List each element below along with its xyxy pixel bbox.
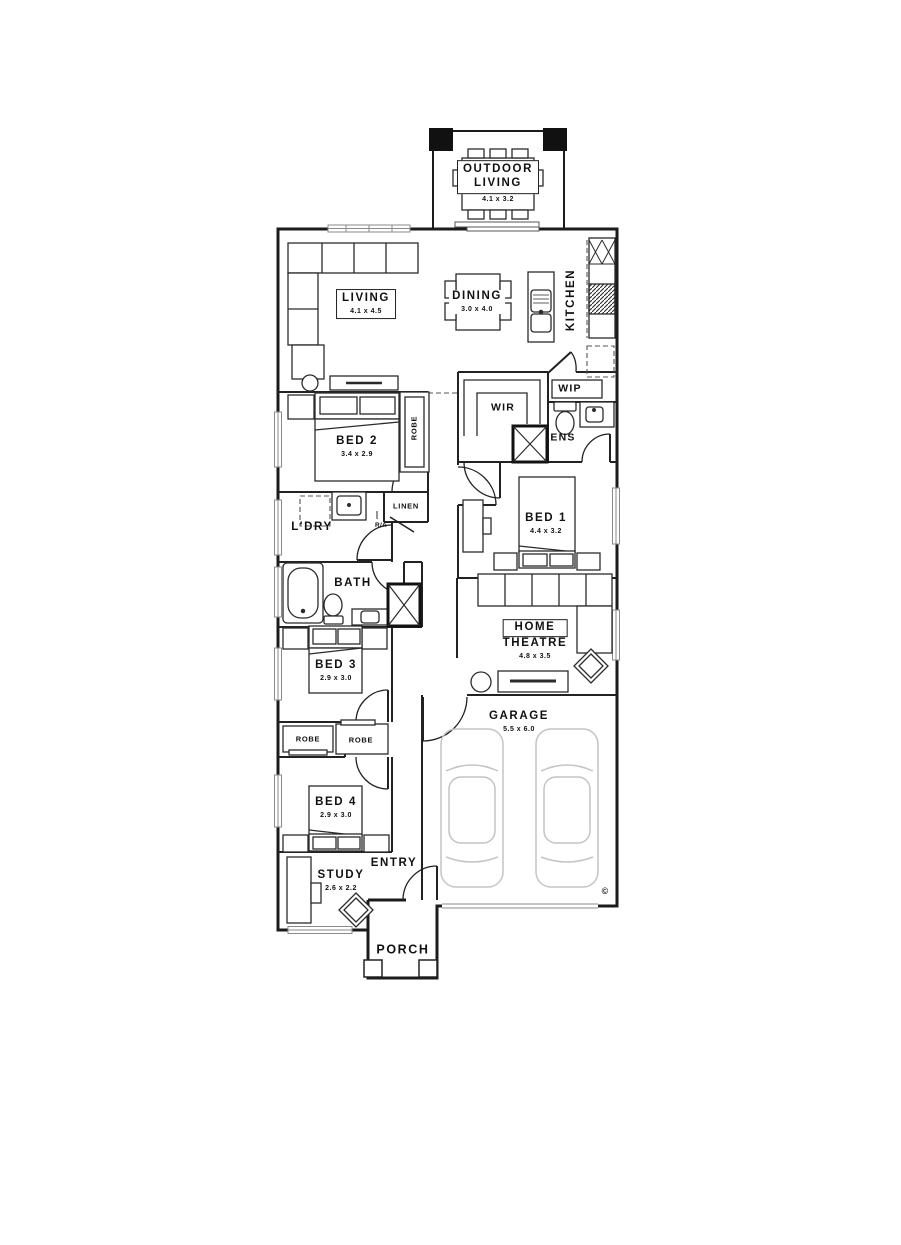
copyright-mark: ©: [602, 886, 609, 896]
sofa: [478, 574, 612, 606]
room-label-bed2: BED 2 3.4 x 2.9: [333, 435, 381, 459]
bedside-table: [494, 553, 517, 570]
furniture-bath: [283, 563, 420, 626]
car: [441, 729, 503, 887]
sofa: [288, 243, 418, 273]
room-label-outdoor-living: OUTDOORLIVING 4.1 x 3.2: [457, 160, 539, 204]
pillow: [360, 397, 395, 414]
garage-door-opening: [442, 902, 598, 910]
bedside-table: [283, 835, 308, 852]
room-label-dining: DINING 3.0 x 4.0: [449, 290, 505, 314]
pillow: [313, 837, 336, 849]
toilet: [324, 594, 342, 616]
pillow: [313, 629, 336, 644]
room-label-robe-bed2: ROBE: [410, 416, 419, 440]
post-left: [429, 128, 453, 151]
chair: [468, 149, 484, 158]
room-label-porch: PORCH: [376, 943, 429, 958]
side-table: [302, 375, 318, 391]
chair: [512, 210, 528, 219]
furniture-garage: [441, 729, 598, 887]
chair: [512, 149, 528, 158]
room-label-entry: ENTRY: [371, 857, 418, 871]
room-label-living: LIVING4.1 x 4.5: [336, 289, 396, 319]
room-label-bed3: BED 3 2.9 x 3.0: [312, 659, 360, 683]
bedside-table: [288, 395, 314, 419]
room-label-wir: WIR: [488, 402, 518, 415]
room-label-robe-bed4: ROBE: [349, 736, 373, 745]
room-label-study: STUDY 2.6 x 2.2: [318, 869, 365, 893]
door-linen: [390, 517, 414, 532]
stacker-door: [455, 222, 539, 227]
desk: [287, 857, 311, 923]
room-label-garage: GARAGE 5.5 x 6.0: [489, 710, 549, 734]
bedside-table: [577, 553, 600, 570]
side-table: [471, 672, 491, 692]
label-return-air: R/A: [375, 522, 387, 530]
toilet-cistern: [554, 402, 576, 411]
pillow: [338, 629, 360, 644]
bedside-table: [283, 628, 308, 649]
pillow: [338, 837, 360, 849]
room-label-kitchen: KITCHEN: [565, 269, 579, 331]
dresser: [463, 500, 483, 552]
toilet-cistern: [324, 616, 343, 624]
room-label-home-theatre: HOME THEATRE 4.8 x 3.5: [503, 619, 568, 661]
post-right: [543, 128, 567, 151]
room-label-wip: WIP: [555, 383, 584, 396]
room-label-linen: LINEN: [393, 502, 419, 511]
room-label-bath: BATH: [334, 577, 372, 591]
room-label-ldry: L'DRY: [291, 521, 333, 535]
chair: [490, 210, 506, 219]
pillow: [320, 397, 357, 414]
porch-structure: [364, 960, 437, 977]
post: [364, 960, 382, 977]
pillow: [523, 554, 547, 566]
room-label-ens: ENS: [550, 432, 575, 445]
room-label-robe-bed3: ROBE: [296, 735, 320, 744]
chair: [468, 210, 484, 219]
car: [536, 729, 598, 887]
bedside-table: [364, 835, 389, 852]
sink: [531, 290, 551, 312]
furniture-laundry: [332, 492, 377, 520]
cooktop: [589, 284, 615, 314]
post: [419, 960, 437, 977]
floorplan-canvas: [0, 0, 901, 1245]
chair: [490, 149, 506, 158]
bedside-table: [362, 628, 387, 649]
door-wip: [548, 352, 571, 373]
basin: [361, 611, 379, 623]
room-label-bed1: BED 1 4.4 x 3.2: [522, 512, 570, 536]
floorplan-page: OUTDOORLIVING 4.1 x 3.2 LIVING4.1 x 4.5 …: [0, 0, 901, 1245]
room-label-bed4: BED 4 2.9 x 3.0: [312, 796, 360, 820]
pillow: [550, 554, 573, 566]
